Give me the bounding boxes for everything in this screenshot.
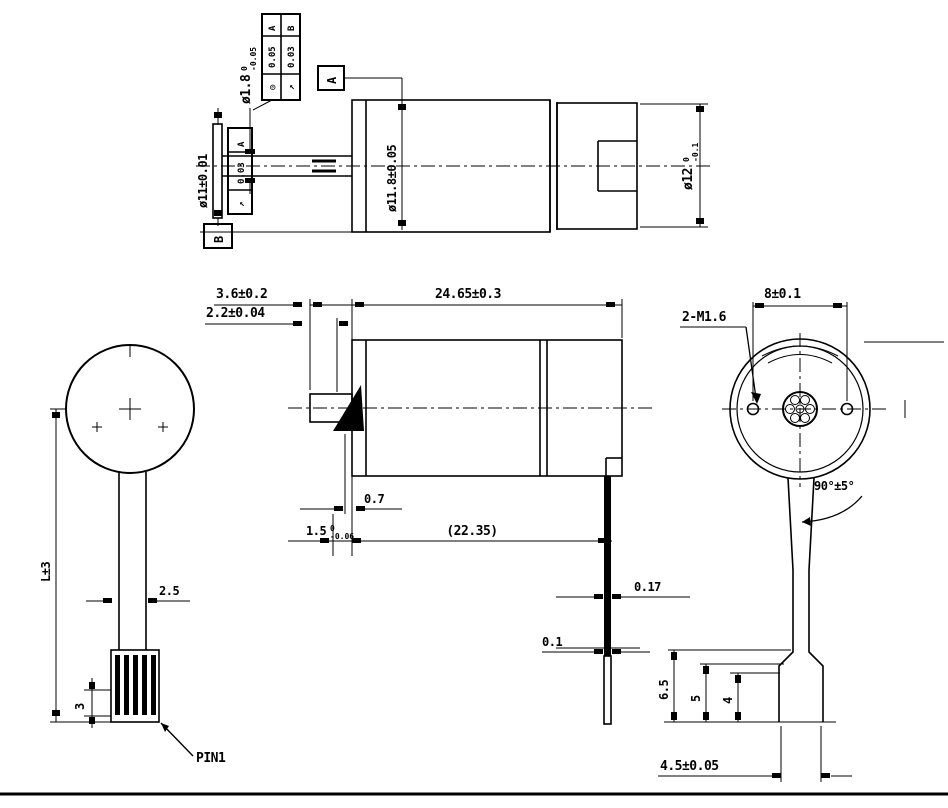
dcut-hatch <box>333 385 364 431</box>
can-dia-tol-upper: 0 <box>682 157 691 162</box>
rear-view: 8±0.1 2-M1.6 90°±5° 6.5 5 4 <box>657 287 944 782</box>
left-feature-control-frame: ↗ 0.03 A <box>228 128 252 214</box>
step-dim: 0.7 <box>364 492 384 506</box>
shaft-dia-tol-lower: -0.05 <box>249 47 258 71</box>
left-fcf-datum: A <box>237 141 247 147</box>
dcut-length-dim: 2.2±0.04 <box>206 306 265 321</box>
datum-b-label: B <box>212 236 226 243</box>
step1-dim: 6.5 <box>657 680 671 700</box>
fcf2-datum: B <box>287 25 297 31</box>
left-fcf-value: 0.03 <box>237 162 247 184</box>
can-dia-tol-lower: -0.1 <box>691 143 700 162</box>
datum-b: B <box>204 218 232 248</box>
screw-marks <box>92 422 168 432</box>
pin-length-dim: 3 <box>73 703 87 710</box>
hole-spacing-dim: 8±0.1 <box>764 287 801 302</box>
boss-value: 1.5 <box>306 524 326 538</box>
boss-tol-lower: -0.06 <box>330 532 354 541</box>
front-view: L±3 2.5 3 PIN1 <box>39 345 226 766</box>
connector-pins <box>115 655 156 715</box>
lead-length-dim: L±3 <box>39 562 53 582</box>
ribbon-width-dim: 2.5 <box>159 584 179 598</box>
tab-thickness-dim: 0.17 <box>634 580 661 594</box>
tab-offset-dim: 0.1 <box>542 635 562 649</box>
angle-arrow <box>802 517 811 526</box>
fcf1-datum: A <box>268 25 278 31</box>
can-dia-value: ø12 <box>681 168 696 190</box>
protrusion-dim: 3.6±0.2 <box>216 287 267 302</box>
step2-dim: 5 <box>689 695 703 702</box>
datum-a-label: A <box>325 76 339 84</box>
body-ref-dim: (22.35) <box>446 524 497 539</box>
fcf1-symbol: ◎ <box>268 84 278 90</box>
pin1-label: PIN1 <box>196 751 226 766</box>
body-diameter-dim: ø11.8±0.05 <box>385 144 399 212</box>
left-fcf-symbol: ↗ <box>237 202 247 207</box>
fcf2-symbol: ↗ <box>287 85 297 90</box>
screw-callout: 2-M1.6 <box>682 310 727 325</box>
boss-dim: 1.5 0 -0.06 <box>306 524 354 541</box>
step3-dim: 4 <box>721 697 735 704</box>
shaft-dia-tol-upper: 0 <box>240 66 249 71</box>
fcf1-value: 0.05 <box>268 46 278 68</box>
fcf2-value: 0.03 <box>287 46 297 68</box>
technical-drawing: ø1.8 0 -0.05 ◎ 0.05 A ↗ 0.03 B ø11±0.01 <box>0 0 948 808</box>
shaft-diameter-dim: ø1.8 0 -0.05 <box>239 47 258 104</box>
feature-control-frame: ◎ 0.05 A ↗ 0.03 B <box>253 14 300 110</box>
left-diameter-dim: ø11±0.01 <box>196 154 210 208</box>
connector-width-dim: 4.5±0.05 <box>660 759 719 774</box>
datum-a: A <box>318 66 402 102</box>
exit-angle-dim: 90°±5° <box>814 479 854 493</box>
top-view: ø1.8 0 -0.05 ◎ 0.05 A ↗ 0.03 B ø11±0.01 <box>196 14 714 248</box>
overall-length-dim: 24.65±0.3 <box>435 287 501 302</box>
side-view: 3.6±0.2 24.65±0.3 2.2±0.04 0.7 1.5 0 -0.… <box>205 287 690 724</box>
shaft-dia-value: ø1.8 <box>239 74 254 104</box>
terminal-tab <box>604 476 611 656</box>
